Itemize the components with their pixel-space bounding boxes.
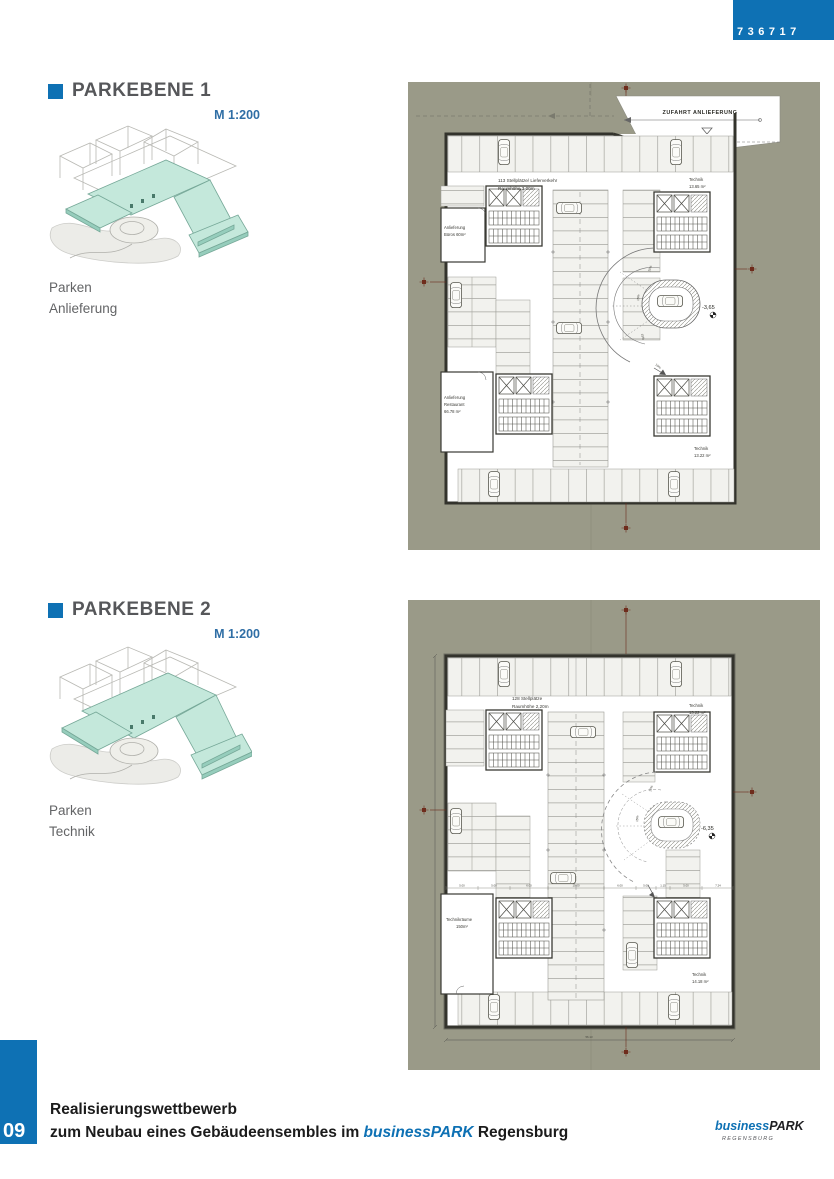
technik-top-label: Technik xyxy=(689,177,704,182)
floor-plan-parkebene-1: ZUFAHRT ANLIEFERUNG Anlieferung xyxy=(408,82,820,550)
svg-text:-3,65: -3,65 xyxy=(702,305,715,311)
svg-text:5.00: 5.00 xyxy=(459,884,465,888)
caption-line: Anlieferung xyxy=(49,298,117,319)
stats-label: Raumhöhe 3,00m xyxy=(498,186,535,191)
footer-title: Realisierungswettbewerb zum Neubau eines… xyxy=(50,1098,568,1144)
section-marker-icon xyxy=(48,84,63,99)
stair-elevator-core-top-right xyxy=(654,712,710,772)
room-technikraeume: Technikräume 150m² xyxy=(441,894,493,994)
stair-elevator-core-top-left xyxy=(486,710,542,770)
entry-label: ZUFAHRT ANLIEFERUNG xyxy=(663,110,738,116)
ramp-island xyxy=(642,280,700,328)
caption-parkebene-1: Parken Anlieferung xyxy=(49,277,117,319)
ramp-island xyxy=(644,802,700,848)
logo-park-part: PARK xyxy=(769,1119,804,1133)
room-label: Technikräume xyxy=(446,917,473,922)
stats-label: 113 Stellplätze/ Lieferverkehr xyxy=(498,178,558,183)
section-heading-parkebene-2: PARKEBENE 2 xyxy=(48,599,211,621)
footer-brand: businessPARK xyxy=(364,1124,474,1141)
caption-parkebene-2: Parken Technik xyxy=(49,800,95,842)
floor-plan-panel-parkebene-1: ZUFAHRT ANLIEFERUNG Anlieferung xyxy=(408,82,820,550)
technik-top-label: Technik xyxy=(689,703,704,708)
section-title: PARKEBENE 1 xyxy=(72,80,211,102)
svg-text:1.15: 1.15 xyxy=(660,884,666,888)
footer-line-1: Realisierungswettbewerb xyxy=(50,1098,568,1121)
caption-line: Technik xyxy=(49,821,95,842)
slope-label: 15% xyxy=(635,815,640,822)
logo-wordmark: businessPARK xyxy=(715,1117,804,1135)
room-anlieferung-bueros: Anlieferung Büros 60m² xyxy=(441,208,486,262)
technik-top-area: 13.22 m² xyxy=(689,710,706,715)
slope-label: 15% xyxy=(636,294,641,301)
room-label: Restaurant xyxy=(444,402,465,407)
center-parking-rack xyxy=(551,190,610,467)
stair-elevator-core-bottom-right xyxy=(654,376,710,436)
svg-text:6.00: 6.00 xyxy=(526,884,532,888)
floor-plan-panel-parkebene-2: 56.13 xyxy=(408,600,820,1070)
technik-bottom-area: 13.22 m² xyxy=(694,453,711,458)
bottom-dimension: 56.13 xyxy=(586,1035,593,1039)
competition-number-block: 736717 xyxy=(733,0,834,40)
technik-top-area: 13.65 m² xyxy=(689,184,706,189)
stall-block xyxy=(623,712,655,782)
technik-bottom-area: 14.18 m² xyxy=(692,979,709,984)
room-label: 150m² xyxy=(456,924,468,929)
competition-number: 736717 xyxy=(733,26,801,40)
technik-bottom-label: Technik xyxy=(694,446,709,451)
footer-line-2: zum Neubau eines Gebäudeensembles im bus… xyxy=(50,1121,568,1144)
stair-elevator-core-bottom-right xyxy=(654,898,710,958)
center-parking-rack xyxy=(546,712,606,1000)
svg-text:6.00: 6.00 xyxy=(617,884,623,888)
stair-elevator-core-top-left xyxy=(486,186,542,246)
room-label: Anlieferung xyxy=(444,395,466,400)
footer-line2-prefix: zum Neubau eines Gebäudeensembles im xyxy=(50,1124,364,1141)
svg-text:-6,35: -6,35 xyxy=(701,826,714,832)
parking-row-top xyxy=(448,136,733,172)
svg-text:10.00: 10.00 xyxy=(573,884,580,888)
stats-label: 128 Stellplätze xyxy=(512,696,543,701)
room-anlieferung-restaurant: Anlieferung Restaurant 66.78 m² xyxy=(441,372,493,452)
stair-elevator-core-bottom-left xyxy=(496,898,552,958)
scale-label: M 1:200 xyxy=(48,627,260,641)
room-label: Büros 60m² xyxy=(444,232,466,237)
isometric-sketch-parkebene-1 xyxy=(46,120,252,276)
stall-block xyxy=(441,186,484,206)
page-number: 09 xyxy=(0,1120,25,1144)
stall-block-right-lower xyxy=(623,896,657,970)
footer-line2-suffix: Regensburg xyxy=(474,1124,569,1141)
page: 736717 PARKEBENE 1 M 1:200 xyxy=(0,0,834,1179)
logo-subtitle: REGENSBURG xyxy=(722,1136,804,1142)
caption-line: Parken xyxy=(49,277,117,298)
stair-elevator-core-bottom-left xyxy=(496,374,552,434)
room-label: 66.78 m² xyxy=(444,409,461,414)
isometric-sketch-parkebene-2 xyxy=(46,641,252,797)
parking-row-top xyxy=(448,658,731,696)
floor-plan-parkebene-2: 56.13 xyxy=(408,600,820,1070)
technik-bottom-label: Technik xyxy=(692,972,707,977)
page-number-tab: 09 xyxy=(0,1040,37,1144)
stall-block-left xyxy=(448,803,496,871)
section-heading-parkebene-1: PARKEBENE 1 xyxy=(48,80,211,102)
stall-block-left xyxy=(448,277,496,347)
parking-row-bottom xyxy=(458,469,734,502)
room-label: Anlieferung xyxy=(444,225,466,230)
section-title: PARKEBENE 2 xyxy=(72,599,211,621)
svg-text:5.00: 5.00 xyxy=(491,884,497,888)
businesspark-logo: businessPARK REGENSBURG xyxy=(715,1117,804,1142)
svg-text:5.00: 5.00 xyxy=(683,884,689,888)
logo-business-part: business xyxy=(715,1119,769,1133)
stats-label: Raumhöhe 2,20m xyxy=(512,704,549,709)
svg-text:7.24: 7.24 xyxy=(715,884,721,888)
stair-elevator-core-top-right xyxy=(654,192,710,252)
caption-line: Parken xyxy=(49,800,95,821)
stall-block xyxy=(446,710,484,766)
section-marker-icon xyxy=(48,603,63,618)
